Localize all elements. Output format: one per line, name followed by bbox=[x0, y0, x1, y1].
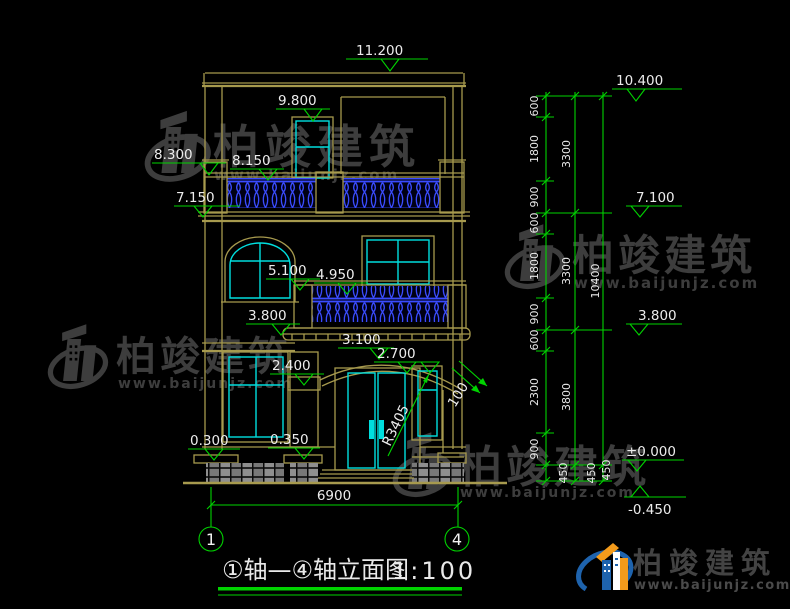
svg-text:0.300: 0.300 bbox=[190, 433, 229, 449]
elevation-marker-2700: 2.700 bbox=[374, 346, 439, 373]
arch-offset-dim: 100 bbox=[445, 361, 487, 410]
svg-text:5.100: 5.100 bbox=[268, 263, 307, 279]
elevation-marker-10400: 10.400 bbox=[612, 73, 682, 101]
svg-text:11.200: 11.200 bbox=[356, 43, 403, 59]
logo-tower bbox=[613, 552, 620, 590]
elevation-marker-3800-left: 3.800 bbox=[246, 308, 300, 335]
axis-bubble-4: 4 bbox=[445, 527, 469, 551]
brand-logo: 柏竣建筑 www.baijunjz.com bbox=[579, 543, 790, 593]
svg-text:2300: 2300 bbox=[528, 378, 541, 406]
svg-text:600: 600 bbox=[528, 213, 541, 234]
svg-text:450: 450 bbox=[557, 463, 570, 484]
baluster-panel bbox=[227, 178, 316, 208]
svg-text:-0.450: -0.450 bbox=[628, 502, 672, 518]
door-handle bbox=[369, 420, 374, 439]
logo-url-text: www.baijunjz.com bbox=[634, 578, 790, 593]
logo-tower bbox=[620, 558, 628, 590]
dimension-chains: 600 1800 900 600 1800 900 600 2300 900 4… bbox=[528, 92, 613, 485]
svg-text:900: 900 bbox=[528, 304, 541, 325]
stone-base bbox=[206, 463, 284, 482]
baluster-panel bbox=[312, 286, 448, 322]
svg-text:3.100: 3.100 bbox=[342, 332, 381, 348]
baluster-panel bbox=[343, 178, 440, 208]
title-scale: 1:100 bbox=[392, 557, 476, 585]
svg-text:7.150: 7.150 bbox=[176, 190, 215, 206]
axis-bubble-1: 1 bbox=[199, 527, 223, 551]
svg-text:2.400: 2.400 bbox=[272, 358, 311, 374]
svg-text:450: 450 bbox=[585, 463, 598, 484]
title-text: ①轴—④轴立面图 bbox=[222, 556, 409, 584]
drawing-canvas: 柏竣建筑 www.baijunjz.com 柏竣建筑 www.baijunjz.… bbox=[0, 0, 790, 609]
elevation-marker-7100: 7.100 bbox=[626, 190, 682, 217]
svg-text:2.700: 2.700 bbox=[377, 346, 416, 362]
svg-text:900: 900 bbox=[528, 187, 541, 208]
svg-text:3.800: 3.800 bbox=[638, 308, 677, 324]
stone-base bbox=[290, 463, 318, 482]
svg-text:8.300: 8.300 bbox=[154, 147, 193, 163]
logo-brand-text: 柏竣建筑 bbox=[633, 546, 777, 580]
watermark-url: www.baijunjz.com bbox=[460, 485, 635, 501]
elevation-marker-11200: 11.200 bbox=[346, 43, 428, 71]
svg-text:10.400: 10.400 bbox=[616, 73, 663, 89]
svg-text:3.800: 3.800 bbox=[248, 308, 287, 324]
cad-elevation-drawing: 柏竣建筑 www.baijunjz.com 柏竣建筑 www.baijunjz.… bbox=[0, 0, 790, 609]
drawing-title: ①轴—④轴立面图 1:100 bbox=[218, 556, 476, 595]
axis-number: 1 bbox=[206, 530, 216, 549]
svg-text:900: 900 bbox=[528, 439, 541, 460]
svg-text:600: 600 bbox=[528, 96, 541, 117]
svg-text:450: 450 bbox=[600, 460, 613, 481]
roof-parapet bbox=[202, 73, 466, 86]
svg-text:9.800: 9.800 bbox=[278, 93, 317, 109]
svg-text:4.950: 4.950 bbox=[316, 267, 355, 283]
stone-base bbox=[412, 463, 464, 482]
svg-text:600: 600 bbox=[528, 330, 541, 351]
title-underline bbox=[218, 587, 462, 591]
svg-text:8.150: 8.150 bbox=[232, 153, 271, 169]
svg-text:0.350: 0.350 bbox=[270, 432, 309, 448]
svg-text:3300: 3300 bbox=[560, 257, 573, 285]
entrance-arch bbox=[320, 365, 462, 394]
elevation-marker-3800-right: 3.800 bbox=[626, 308, 682, 335]
svg-text:3300: 3300 bbox=[560, 140, 573, 168]
svg-text:10400: 10400 bbox=[589, 264, 602, 299]
arch-offset-label: 100 bbox=[445, 380, 472, 410]
svg-text:1800: 1800 bbox=[528, 135, 541, 163]
svg-text:1800: 1800 bbox=[528, 252, 541, 280]
svg-text:7.100: 7.100 bbox=[636, 190, 675, 206]
svg-text:3800: 3800 bbox=[560, 383, 573, 411]
axis-number: 4 bbox=[452, 530, 462, 549]
svg-text:±0.000: ±0.000 bbox=[626, 444, 676, 460]
overall-width-label: 6900 bbox=[317, 488, 351, 504]
